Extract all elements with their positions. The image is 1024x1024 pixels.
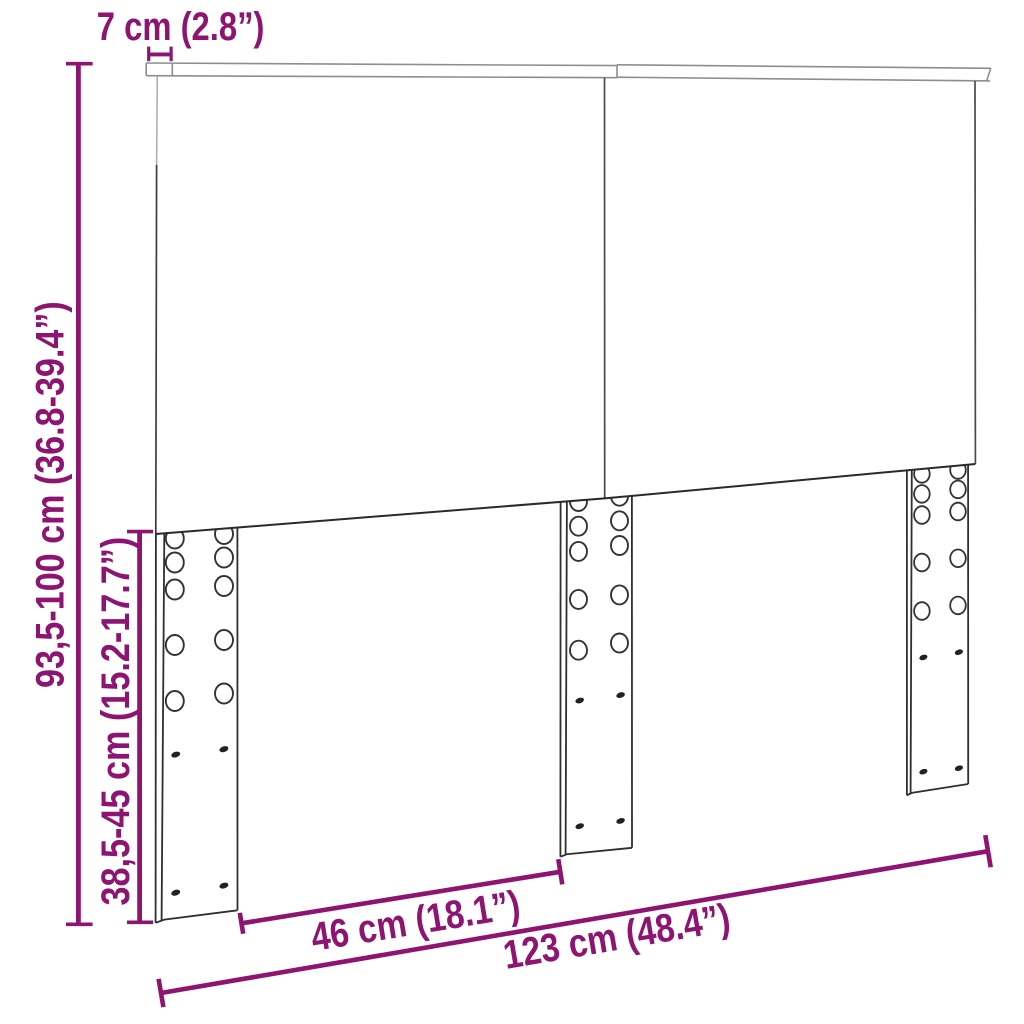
svg-text:7 cm (2.8”): 7 cm (2.8”) bbox=[97, 4, 265, 49]
svg-text:38,5-45 cm (15.2-17.7”): 38,5-45 cm (15.2-17.7”) bbox=[92, 537, 137, 906]
svg-text:93,5-100 cm (36.8-39.4”): 93,5-100 cm (36.8-39.4”) bbox=[27, 301, 72, 688]
